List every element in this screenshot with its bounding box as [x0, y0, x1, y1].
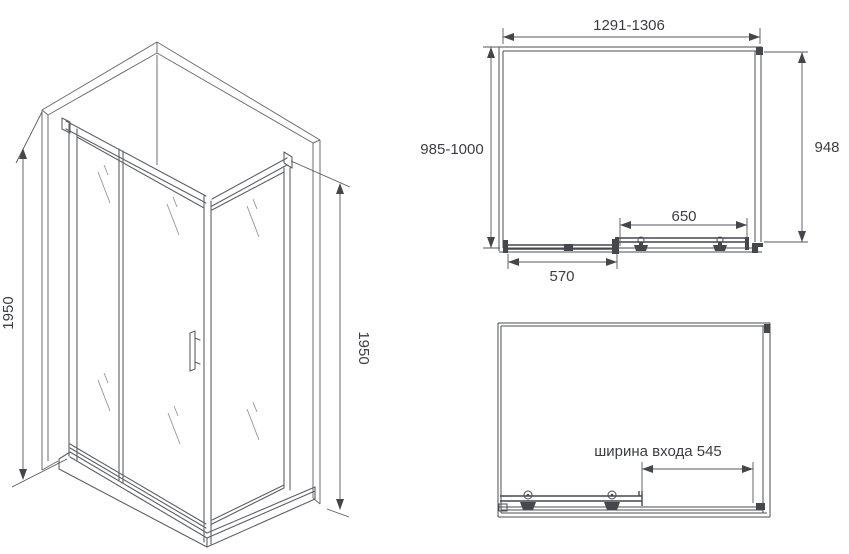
- roller-axle: [527, 494, 530, 497]
- open-walls: [498, 323, 770, 517]
- drawing-canvas: 1950 1950 1291-1306 985-1000 948 650 570: [0, 0, 849, 554]
- dim-label-fixed-panel-width: 570: [549, 268, 574, 285]
- plan-rollers: [634, 237, 727, 251]
- plan-top-view: 1291-1306 985-1000 948 650 570: [420, 17, 839, 285]
- iso-dimension-arrows: [19, 148, 344, 510]
- dim-label-side-depth: 948: [814, 139, 839, 156]
- door-handle: [190, 331, 200, 371]
- dim-label-door-width: 650: [671, 208, 696, 225]
- dim-label-width-range: 1291-1306: [593, 17, 665, 34]
- iso-frame: [62, 118, 292, 544]
- iso-tray: [59, 452, 315, 547]
- open-dimension-lines: [642, 462, 753, 503]
- roller-brackets: [520, 502, 620, 510]
- plan-fixed-panel: [508, 245, 617, 249]
- dim-label-height-left: 1950: [0, 296, 17, 329]
- iso-glass-marks: [98, 165, 259, 444]
- dim-label-height-right: 1950: [355, 331, 372, 364]
- plan-dimension-lines: [483, 28, 808, 269]
- dim-label-depth-range: 985-1000: [420, 141, 483, 158]
- plan-open-view: ширина входа 545: [498, 323, 770, 517]
- roller-brackets: [634, 242, 727, 251]
- iso-view: 1950 1950: [0, 42, 372, 547]
- plan-sliding-door: [616, 238, 749, 242]
- dim-label-entrance-width: ширина входа 545: [594, 443, 722, 460]
- technical-drawing: 1950 1950 1291-1306 985-1000 948 650 570: [0, 0, 849, 554]
- plan-dimension-arrows: [487, 33, 806, 266]
- iso-walls: [42, 42, 320, 504]
- roller-axle: [611, 494, 614, 497]
